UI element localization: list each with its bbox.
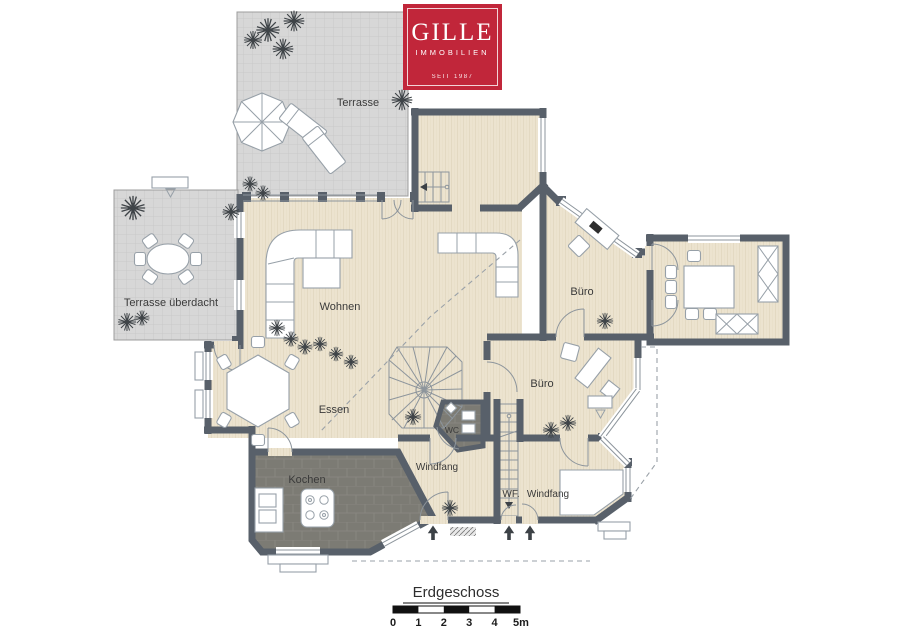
coffee-table (303, 258, 340, 288)
room-label-wf: WF. (502, 489, 519, 500)
kitchen-island (301, 489, 334, 527)
room-label-terrasse: Terrasse (337, 97, 379, 109)
scale-tick-5m: 5m (513, 617, 529, 629)
room-label-wohnen: Wohnen (320, 301, 361, 313)
logo-since: SEIT 1987 (432, 74, 474, 80)
scale-tick-0: 0 (390, 617, 396, 629)
scale-tick-2: 2 (441, 617, 447, 629)
floorplan-drawing: Terrasse Terrasse überdacht Wohnen Büro … (0, 0, 900, 636)
room-label-wc: WC (445, 425, 459, 435)
doormat (450, 527, 476, 536)
room-label-windfang-left: Windfang (416, 462, 458, 473)
room-label-windfang-right: Windfang (527, 489, 569, 500)
scale-tick-1: 1 (415, 617, 421, 629)
room-label-buero-mid: Büro (530, 378, 553, 390)
room-label-terrasse-ueberdacht: Terrasse überdacht (124, 297, 218, 309)
room-label-kochen: Kochen (288, 474, 325, 486)
scale-tick-3: 3 (466, 617, 472, 629)
gille-logo: GILLE IMMOBILIEN SEIT 1987 (403, 4, 502, 90)
room-label-essen: Essen (319, 404, 350, 416)
scale-tick-4: 4 (492, 617, 499, 629)
room-label-buero-top: Büro (570, 286, 593, 298)
logo-brand: GILLE (411, 20, 493, 45)
plan-title: Erdgeschoss (413, 584, 500, 601)
logo-division: IMMOBILIEN (415, 48, 489, 57)
entrance-arrows (428, 526, 535, 541)
scale-bar: Erdgeschoss 0 1 2 3 4 5m (390, 584, 529, 629)
floorplan-page: Terrasse Terrasse überdacht Wohnen Büro … (0, 0, 900, 636)
